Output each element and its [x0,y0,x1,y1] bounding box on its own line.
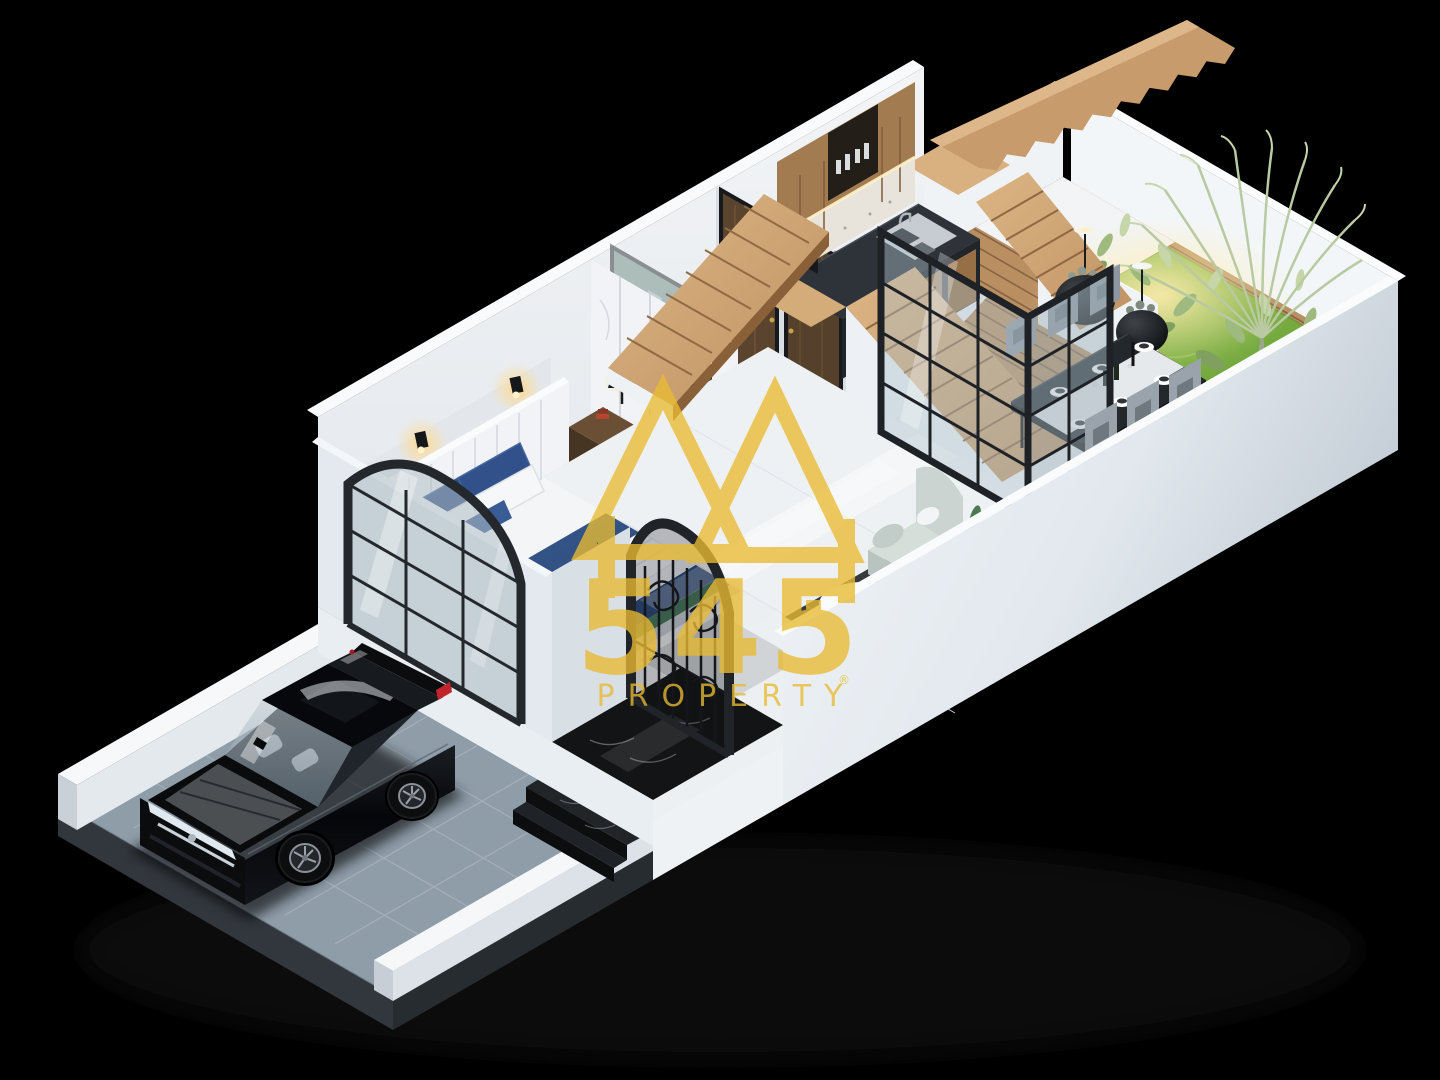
watermark-word: PROPERTY [597,679,856,714]
floorplan-render: 545 PROPERTY ® [0,0,1440,1080]
isometric-scene: 545 PROPERTY ® [0,0,1440,1080]
wheel [388,774,436,818]
wheel [279,834,331,882]
watermark-registered: ® [838,673,850,687]
